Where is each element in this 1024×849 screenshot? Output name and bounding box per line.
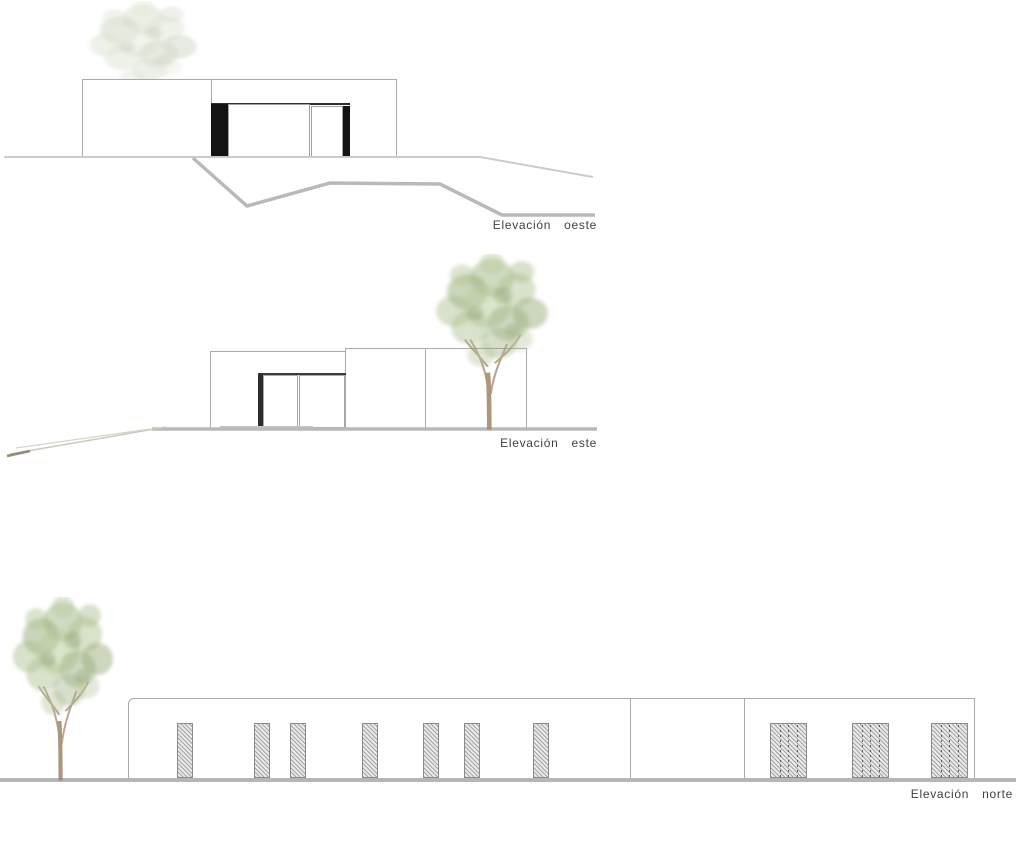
tree-north — [2, 597, 124, 783]
north-facade-joint-1 — [630, 699, 631, 779]
east-window-pane-2 — [299, 375, 345, 428]
north-elevation-label: Elevación norte — [813, 787, 1013, 801]
north-building — [128, 698, 975, 780]
elevation-sheet: Elevación oeste Elevación este Elevación… — [0, 0, 1024, 849]
west-elevation-label: Elevación oeste — [397, 218, 597, 232]
north-facade-joint-2 — [744, 699, 745, 779]
east-terrace-edge — [220, 426, 313, 428]
west-facade-joint — [211, 80, 212, 104]
west-window-pane-1 — [228, 104, 310, 157]
west-window-pane-2 — [311, 106, 343, 157]
west-window-dark-jamb — [211, 104, 228, 157]
east-elevation-label: Elevación este — [397, 436, 597, 450]
west-window-dark-stile — [343, 106, 350, 157]
tree-west — [78, 1, 208, 85]
east-window-pane-1 — [263, 375, 298, 428]
tree-east — [424, 254, 560, 432]
